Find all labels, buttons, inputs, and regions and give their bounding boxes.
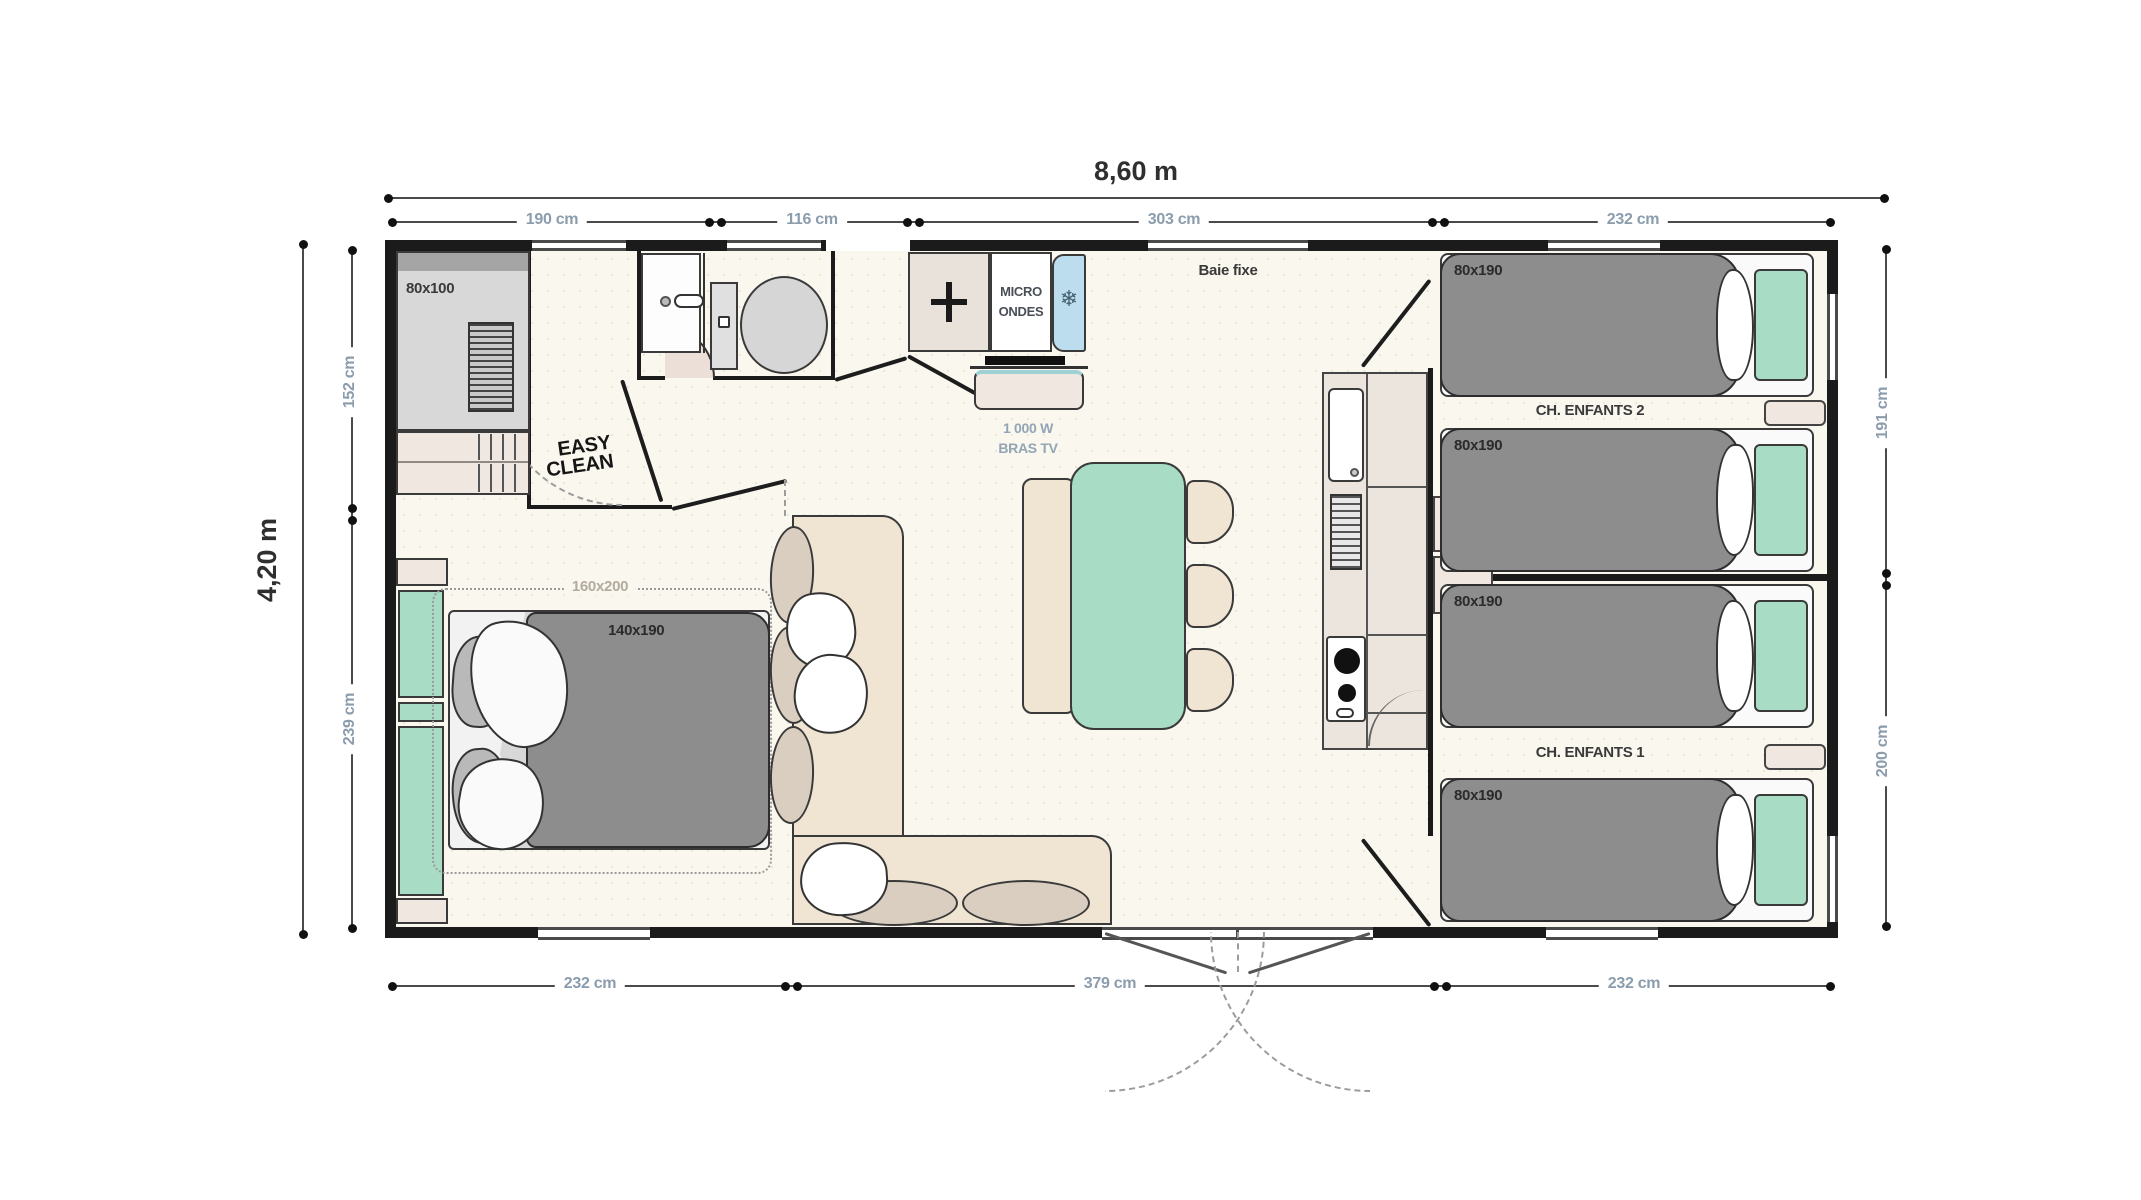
kitchen-counter-divider [1366, 374, 1368, 748]
dim-dot [348, 924, 357, 933]
window-baie-fixe [1148, 240, 1308, 251]
kitchen-faucet [1350, 468, 1359, 477]
hob-burner-large [1334, 648, 1360, 674]
window-top-children-room-2 [1548, 240, 1660, 251]
single-bed-size-label: 80x190 [1454, 593, 1502, 610]
wc-sink-handle [674, 294, 704, 308]
hob-control [1336, 708, 1354, 718]
microwave-label-line-1: MICRO [996, 282, 1046, 302]
dining-table [1070, 462, 1186, 730]
wall-wc-bottom-right [713, 376, 835, 380]
kitchen-sink [1328, 388, 1364, 482]
dim-bottom-3: 232 cm [1599, 975, 1669, 993]
single-bed-sheet-crumple [1716, 269, 1754, 381]
dim-dot [1882, 922, 1891, 931]
wardrobe-hanging-marks-top [478, 434, 522, 460]
dim-dot [1882, 245, 1891, 254]
dim-dot [1826, 218, 1835, 227]
dim-double-dot [903, 218, 924, 227]
double-bed-size-label: 140x190 [608, 622, 664, 639]
kitchen-drainer [1330, 494, 1362, 570]
window-right-top [1827, 294, 1838, 380]
window-bottom-children-room-1 [1546, 927, 1658, 940]
nightstand-bottom [396, 898, 448, 924]
children-room-2-label: CH. ENFANTS 2 [1460, 402, 1720, 419]
wardrobe-hanging-marks-bottom [478, 464, 522, 492]
dim-dot [1880, 194, 1889, 203]
wc-sink-faucet [660, 296, 671, 307]
window-right-bottom [1827, 836, 1838, 922]
children-room-1-label: CH. ENFANTS 1 [1460, 744, 1720, 761]
kitchen-cabinet-line [1368, 486, 1426, 488]
dim-dot [348, 246, 357, 255]
dim-left-2: 239 cm [341, 684, 359, 754]
single-bed-size-label: 80x190 [1454, 437, 1502, 454]
microwave-label-line-2: ONDES [996, 302, 1046, 322]
single-bed-pillow [1754, 269, 1808, 381]
easy-clean-label: EASY CLEAN [543, 433, 615, 480]
wc-partition [703, 253, 705, 353]
dim-top-1: 190 cm [517, 211, 587, 229]
kitchen-cabinet-line [1368, 634, 1426, 636]
dim-height-total: 4,20 m [252, 508, 283, 612]
single-bed-pillow [1754, 600, 1808, 712]
window-bottom-bedroom [538, 927, 650, 940]
dim-double-dot [781, 982, 802, 991]
shower-drain-grid [468, 322, 514, 412]
dim-line-top-overall [388, 197, 1884, 199]
single-bed-pillow [1754, 444, 1808, 556]
dim-double-dot [705, 218, 726, 227]
nightstand-top [396, 558, 448, 586]
tv-screen [985, 356, 1065, 365]
single-bed-sheet-crumple [1716, 600, 1754, 712]
dim-width-total: 8,60 m [1084, 156, 1188, 187]
tv-power-label: 1 000 W [1003, 420, 1053, 436]
double-bed-duvet [526, 612, 770, 848]
dim-dot [299, 930, 308, 939]
microwave-label: MICRO ONDES [996, 282, 1046, 321]
dim-dot [388, 982, 397, 991]
children-room-1-nightstand [1764, 744, 1826, 770]
wardrobe-shelf-divider [398, 461, 528, 463]
dim-dot [1826, 982, 1835, 991]
dim-top-2: 116 cm [777, 211, 847, 229]
fixed-window-label: Baie fixe [1199, 262, 1258, 279]
double-bed-outline-label: 160x200 [564, 578, 636, 595]
wall-dashed-stub [784, 480, 786, 516]
wall-wc-right [831, 251, 835, 380]
dim-bottom-1: 232 cm [555, 975, 625, 993]
entry-door-opening [826, 240, 910, 251]
wall-bedroom-top [527, 505, 672, 509]
single-bed-size-label: 80x190 [1454, 262, 1502, 279]
sofa-seat-cushion [962, 880, 1090, 926]
tv-bracket-label: BRAS TV [998, 440, 1057, 456]
dim-top-3: 303 cm [1139, 211, 1209, 229]
single-bed-size-label: 80x190 [1454, 787, 1502, 804]
french-door-center-dash [1237, 932, 1239, 972]
dim-double-dot [1428, 218, 1449, 227]
dim-double-dot [1430, 982, 1451, 991]
wall-wc-bottom-left [637, 376, 665, 380]
cross-bar-v [946, 282, 952, 322]
cross-icon [931, 282, 967, 322]
dim-double-dot [348, 504, 357, 525]
shower-size-label: 80x100 [406, 280, 454, 297]
dim-dot [384, 194, 393, 203]
dining-bench [1022, 478, 1076, 714]
shower-top-strip [398, 253, 528, 271]
single-bed-pillow [1754, 794, 1808, 906]
dim-left-1: 152 cm [341, 347, 359, 417]
children-room-2-nightstand [1764, 400, 1826, 426]
window-top-hallway [532, 240, 626, 251]
dim-top-4: 232 cm [1598, 211, 1668, 229]
dim-right-1: 191 cm [1874, 378, 1892, 448]
toilet-bowl [740, 276, 828, 374]
window-top-wc [727, 240, 821, 251]
dim-line-left-overall [302, 243, 304, 937]
hob-burner-small [1338, 684, 1356, 702]
dim-double-dot [1882, 569, 1891, 590]
tv-shelf [974, 370, 1084, 410]
dim-dot [299, 240, 308, 249]
snowflake-icon: ❄ [1054, 286, 1084, 312]
dim-right-2: 200 cm [1874, 716, 1892, 786]
floor-plan-canvas: 8,60 m 190 cm 116 cm 303 cm 232 cm 4,20 … [0, 0, 2141, 1200]
toilet-flush-button [718, 316, 730, 328]
tv-bracket-bar [970, 366, 1088, 369]
dim-dot [388, 218, 397, 227]
